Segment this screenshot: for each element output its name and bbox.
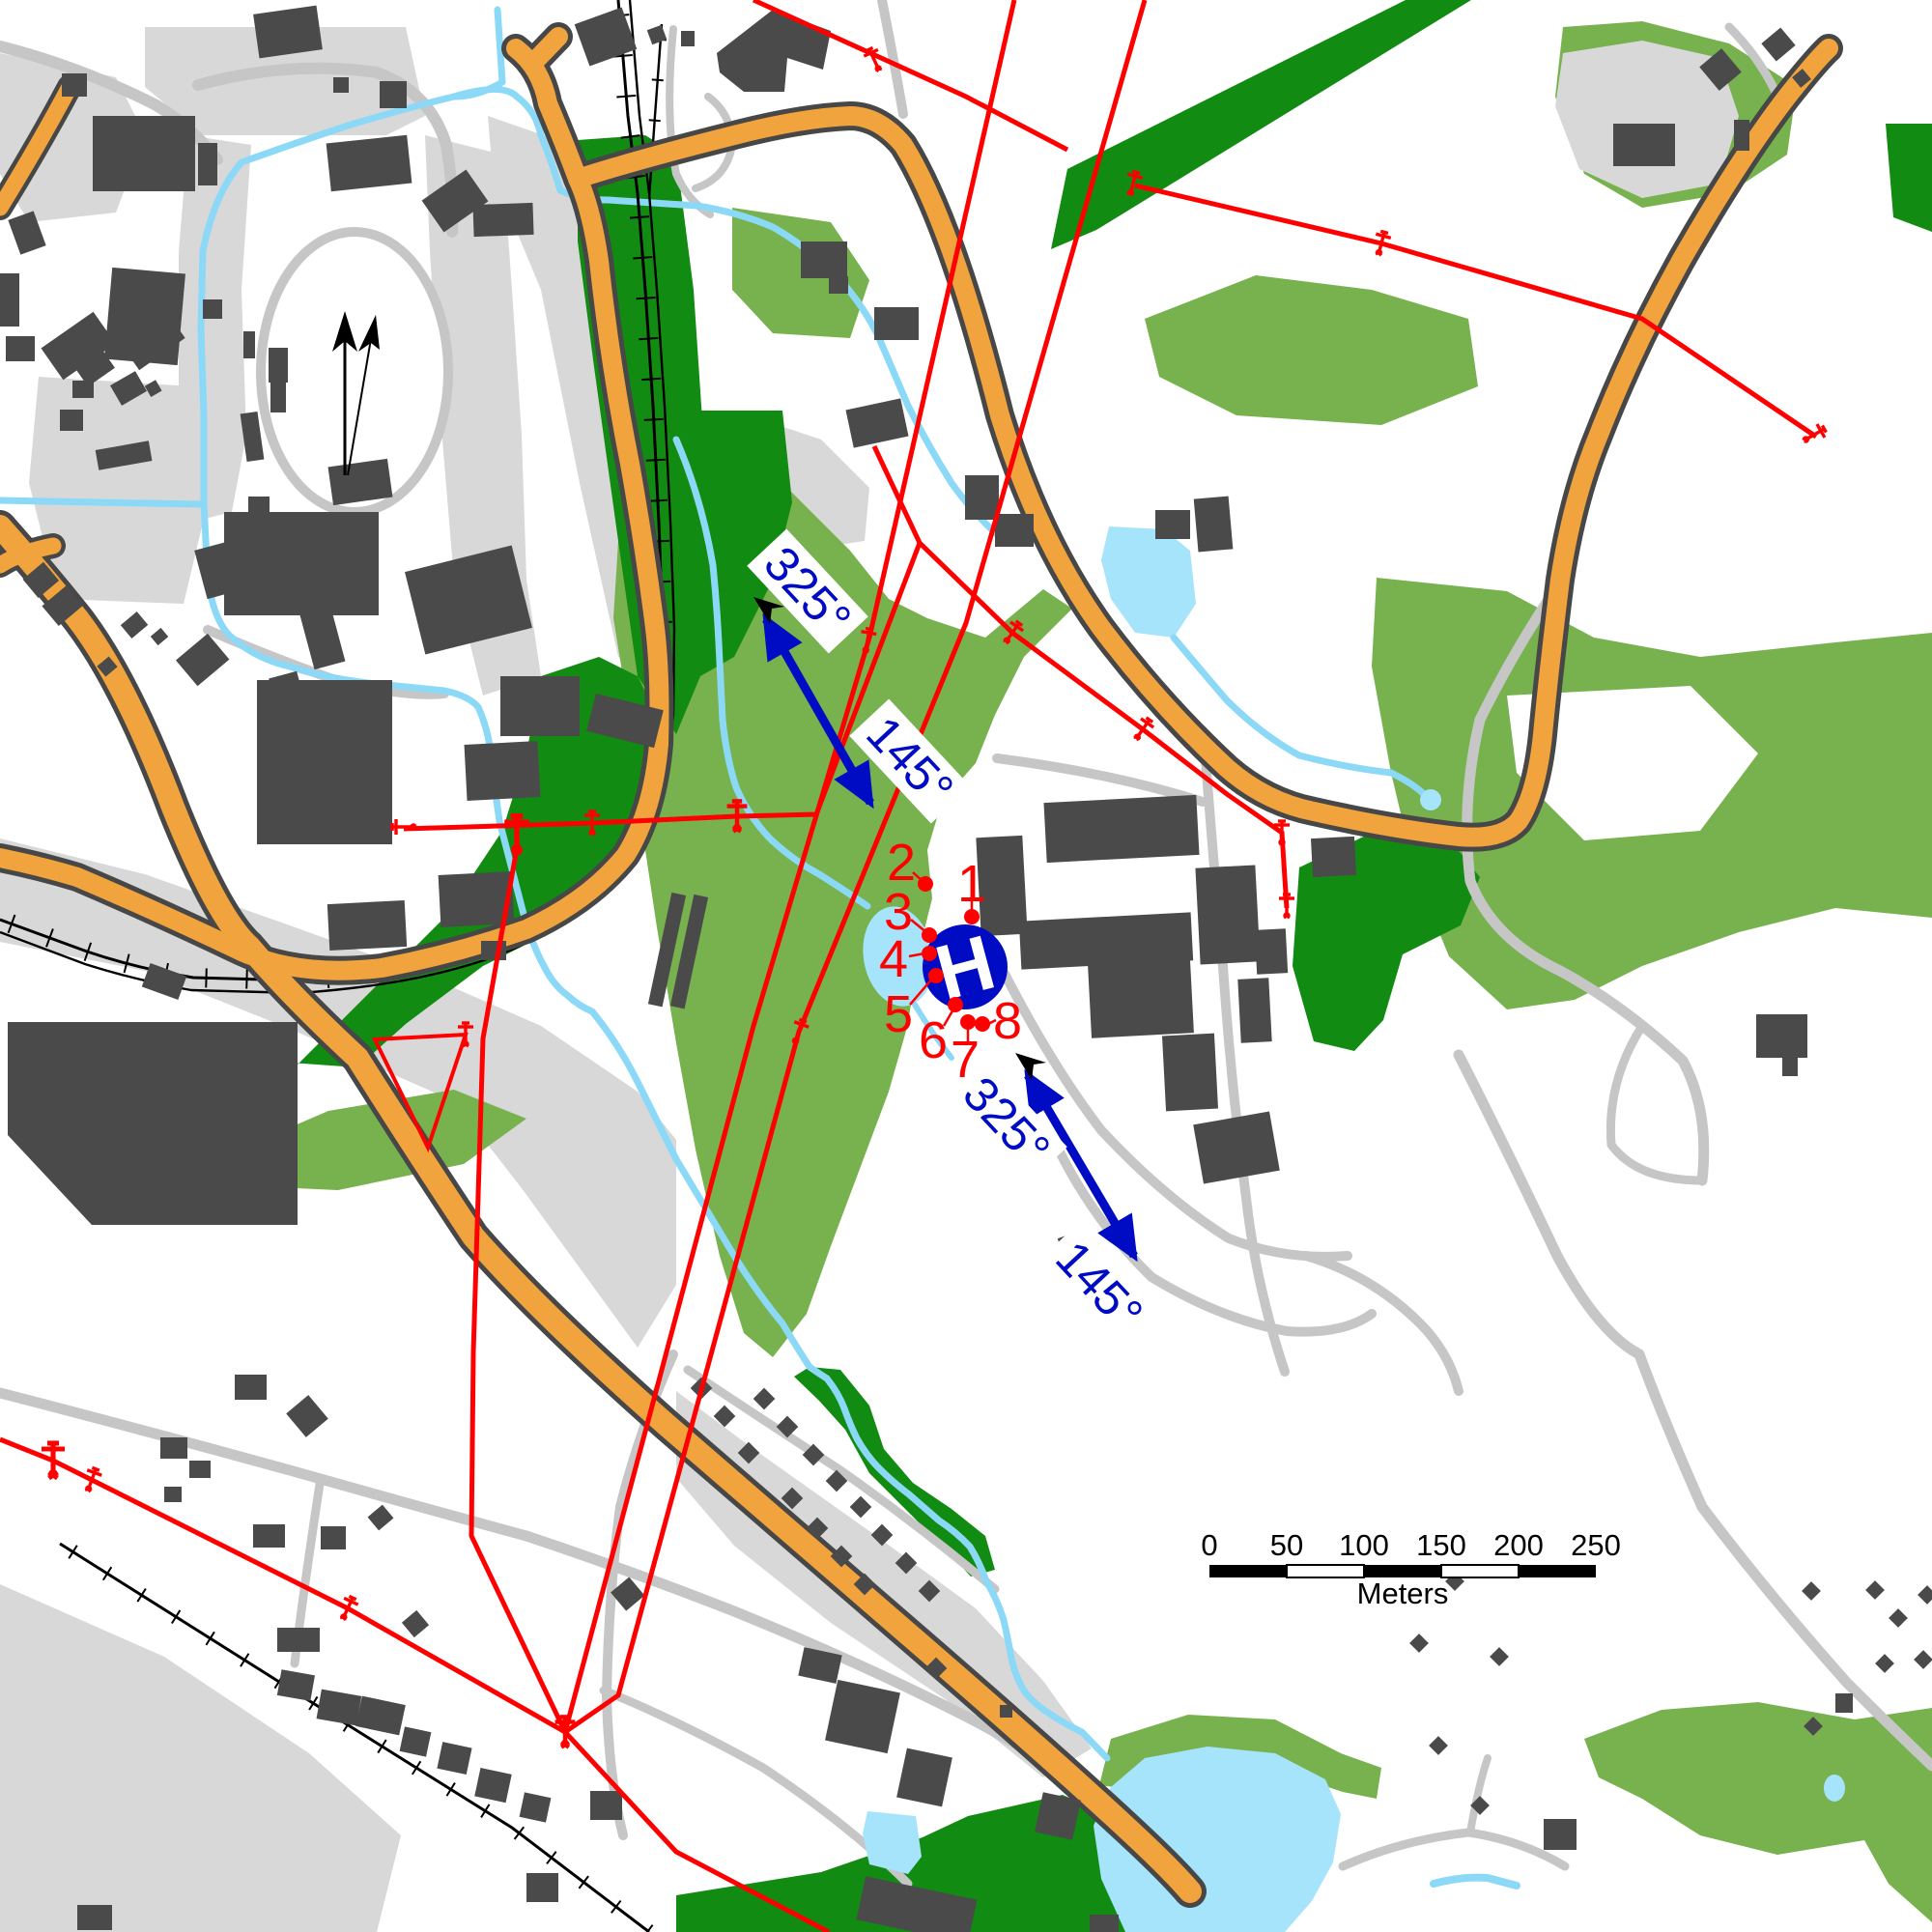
point-dot-5	[928, 968, 944, 983]
scale-tick-0: 0	[1201, 1528, 1217, 1562]
map-canvas: 325° 145° 325° 145° H	[0, 0, 1932, 1932]
point-label-5: 5	[884, 985, 913, 1043]
scale-unit-label: Meters	[1357, 1577, 1449, 1610]
point-dot-4	[922, 946, 937, 961]
point-label-1: 1	[957, 855, 986, 913]
point-dot-7	[960, 1014, 976, 1030]
point-label-8: 8	[993, 992, 1022, 1050]
point-label-7: 7	[951, 1031, 980, 1089]
scale-tick-100: 100	[1339, 1528, 1389, 1562]
point-dot-3	[922, 927, 937, 943]
point-label-4: 4	[879, 930, 908, 988]
point-dot-6	[948, 997, 963, 1012]
map-svg: 325° 145° 325° 145° H	[0, 0, 1932, 1932]
scale-tick-150: 150	[1416, 1528, 1466, 1562]
scale-tick-250: 250	[1571, 1528, 1621, 1562]
scale-tick-200: 200	[1493, 1528, 1544, 1562]
point-dot-8	[975, 1016, 990, 1032]
point-dot-2	[918, 876, 933, 892]
scale-tick-50: 50	[1270, 1528, 1303, 1562]
point-label-6: 6	[919, 1011, 948, 1069]
